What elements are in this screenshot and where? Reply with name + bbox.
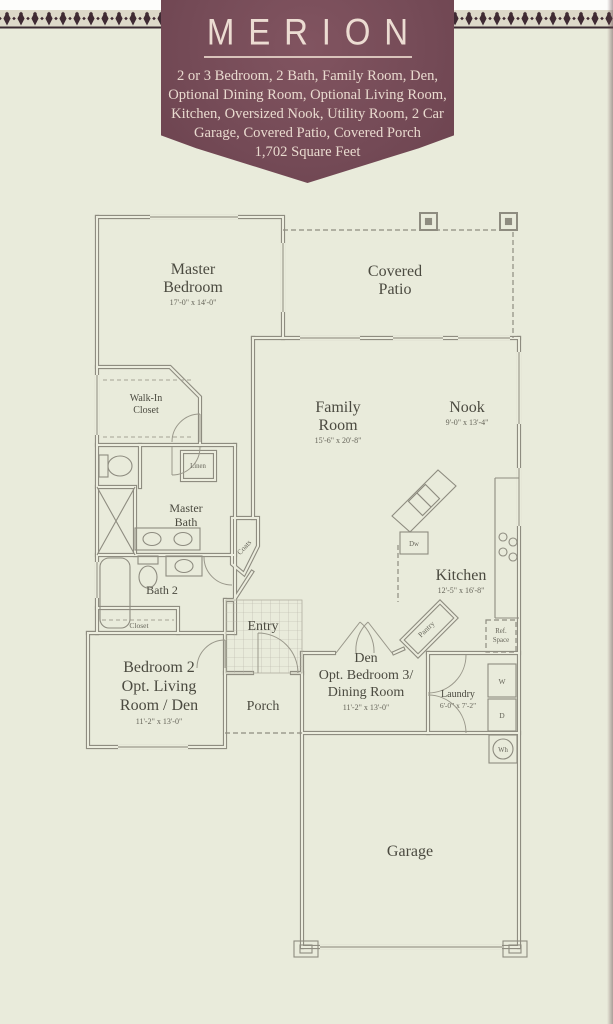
label-master-bath-2: Bath xyxy=(175,515,198,529)
label-ref-space-2: Space xyxy=(493,637,509,644)
label-bedroom-2-2: Opt. Living xyxy=(122,678,197,695)
label-bedroom-2-1: Bedroom 2 xyxy=(123,659,195,676)
label-water-heater: Wh xyxy=(498,747,508,754)
label-covered-patio-2: Patio xyxy=(379,281,412,298)
patio-posts xyxy=(420,213,517,230)
dims-family-room: 15'-6" x 20'-8" xyxy=(315,436,362,445)
label-family-room-2: Room xyxy=(318,417,358,434)
dashed-lines xyxy=(102,230,516,733)
label-coats: Coats xyxy=(235,538,253,557)
label-den-1: Den xyxy=(354,651,377,666)
label-bedroom-2-3: Room / Den xyxy=(120,697,198,714)
dims-nook: 9'-0" x 13'-4" xyxy=(446,418,489,427)
dims-bedroom-2: 11'-2" x 13'-0" xyxy=(136,717,182,726)
label-walk-in-closet-2: Closet xyxy=(133,405,159,416)
label-bath-2: Bath 2 xyxy=(146,583,178,597)
label-walk-in-closet-1: Walk-In xyxy=(130,393,163,404)
label-family-room-1: Family xyxy=(315,399,360,416)
label-laundry: Laundry xyxy=(441,689,475,700)
label-nook: Nook xyxy=(449,399,485,416)
label-porch: Porch xyxy=(247,699,280,714)
label-ref-space-1: Ref. xyxy=(495,628,507,635)
plan-feature-list: 2 or 3 Bedroom, 2 Bath, Family Room, Den… xyxy=(167,67,449,143)
label-washer: W xyxy=(498,677,506,686)
label-dryer: D xyxy=(499,711,505,720)
dims-laundry: 6'-0" x 7'-2" xyxy=(440,701,476,710)
label-dishwasher: Dw xyxy=(409,541,419,548)
dims-kitchen: 12'-5" x 16'-8" xyxy=(438,586,485,595)
label-den-3: Dining Room xyxy=(328,685,405,700)
dims-master-bedroom: 17'-0" x 14'-0" xyxy=(170,298,217,307)
label-closet: Closet xyxy=(129,621,149,630)
plan-name-title: MERION xyxy=(161,11,454,54)
label-kitchen: Kitchen xyxy=(436,567,487,584)
label-linen: Linen xyxy=(190,463,206,470)
dims-den: 11'-2" x 13'-0" xyxy=(343,703,389,712)
title-underline xyxy=(204,56,412,58)
floor-plan-page: Master Bedroom 17'-0" x 14'-0" Covered P… xyxy=(0,0,613,1024)
entry-tile-floor xyxy=(226,600,302,673)
label-master-bedroom-1: Master xyxy=(171,261,216,278)
label-master-bath-1: Master xyxy=(169,501,202,515)
label-entry: Entry xyxy=(247,619,278,634)
label-covered-patio-1: Covered xyxy=(368,263,422,280)
label-garage: Garage xyxy=(387,843,433,860)
label-den-2: Opt. Bedroom 3/ xyxy=(319,668,414,683)
label-master-bedroom-2: Bedroom xyxy=(163,279,223,296)
